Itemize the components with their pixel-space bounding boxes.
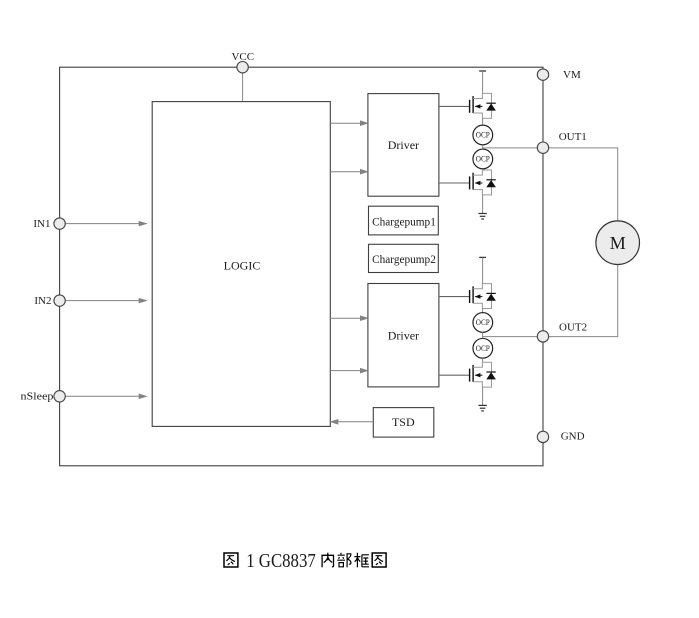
svg-text:GND: GND [561, 431, 585, 443]
svg-text:OCP: OCP [476, 344, 490, 353]
svg-text:OCP: OCP [476, 318, 490, 327]
svg-text:OUT1: OUT1 [559, 131, 587, 143]
svg-text:OCP: OCP [476, 131, 490, 140]
svg-text:VCC: VCC [231, 51, 254, 63]
svg-text:1 GC8837: 1 GC8837 [246, 550, 316, 572]
svg-text:OUT2: OUT2 [559, 321, 587, 333]
svg-text:Driver: Driver [388, 138, 419, 152]
svg-text:Chargepump1: Chargepump1 [372, 214, 436, 228]
svg-text:nSleep: nSleep [21, 391, 55, 403]
svg-text:IN2: IN2 [34, 295, 51, 307]
svg-text:VM: VM [563, 69, 581, 81]
svg-text:IN1: IN1 [33, 218, 50, 230]
svg-text:OCP: OCP [476, 155, 490, 164]
svg-text:LOGIC: LOGIC [224, 258, 261, 272]
svg-text:M: M [610, 233, 626, 253]
svg-text:Chargepump2: Chargepump2 [372, 252, 436, 266]
svg-text:TSD: TSD [392, 415, 415, 429]
svg-text:Driver: Driver [388, 328, 419, 342]
